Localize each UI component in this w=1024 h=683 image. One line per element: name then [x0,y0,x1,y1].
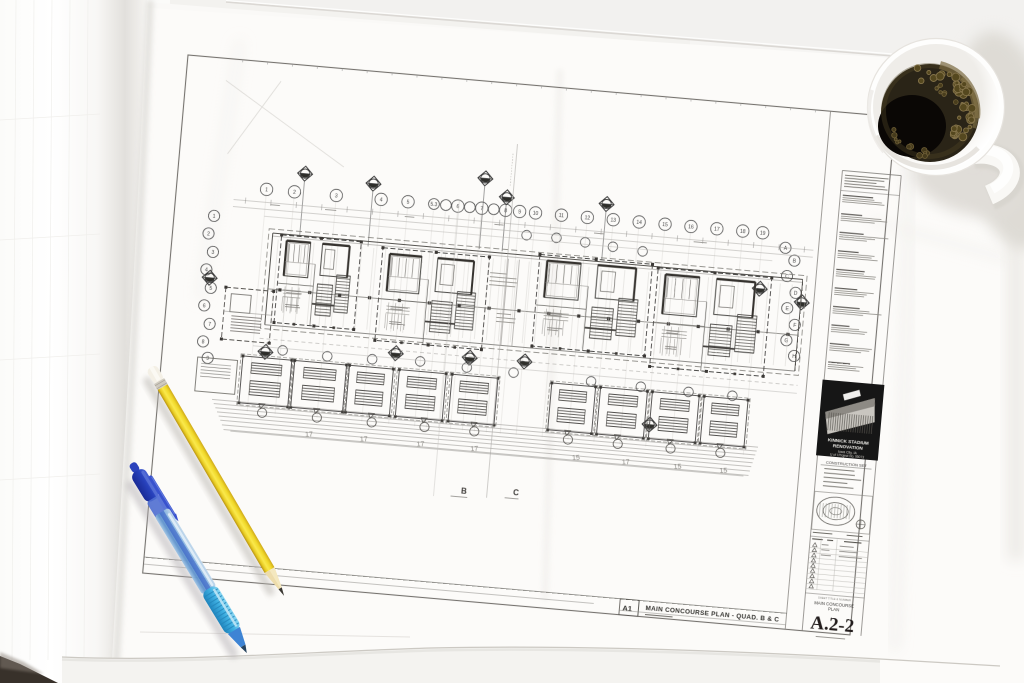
svg-text:17: 17 [416,441,424,448]
svg-text:16: 16 [688,224,694,230]
svg-text:19: 19 [760,230,766,236]
svg-text:C: C [513,488,520,497]
svg-text:10: 10 [532,210,538,216]
svg-text:17: 17 [305,431,313,438]
svg-text:11: 11 [559,213,565,219]
svg-text:15: 15 [674,464,682,471]
svg-text:PLAN: PLAN [828,607,840,613]
svg-text:F: F [793,323,797,329]
svg-text:12: 12 [584,215,590,221]
svg-text:15: 15 [572,455,580,462]
svg-text:17: 17 [360,436,368,443]
svg-text:15: 15 [719,468,727,475]
svg-text:18: 18 [740,229,746,235]
svg-text:5.3: 5.3 [430,202,438,209]
svg-text:A.2-2: A.2-2 [810,612,855,637]
svg-text:A1: A1 [622,603,632,613]
svg-text:17: 17 [622,459,630,466]
svg-text:14: 14 [636,220,642,226]
svg-text:17: 17 [714,226,720,232]
svg-text:B: B [461,486,468,495]
svg-text:17: 17 [470,446,478,453]
svg-text:13: 13 [610,217,616,223]
svg-text:15: 15 [662,222,668,228]
svg-text:G: G [784,338,789,344]
